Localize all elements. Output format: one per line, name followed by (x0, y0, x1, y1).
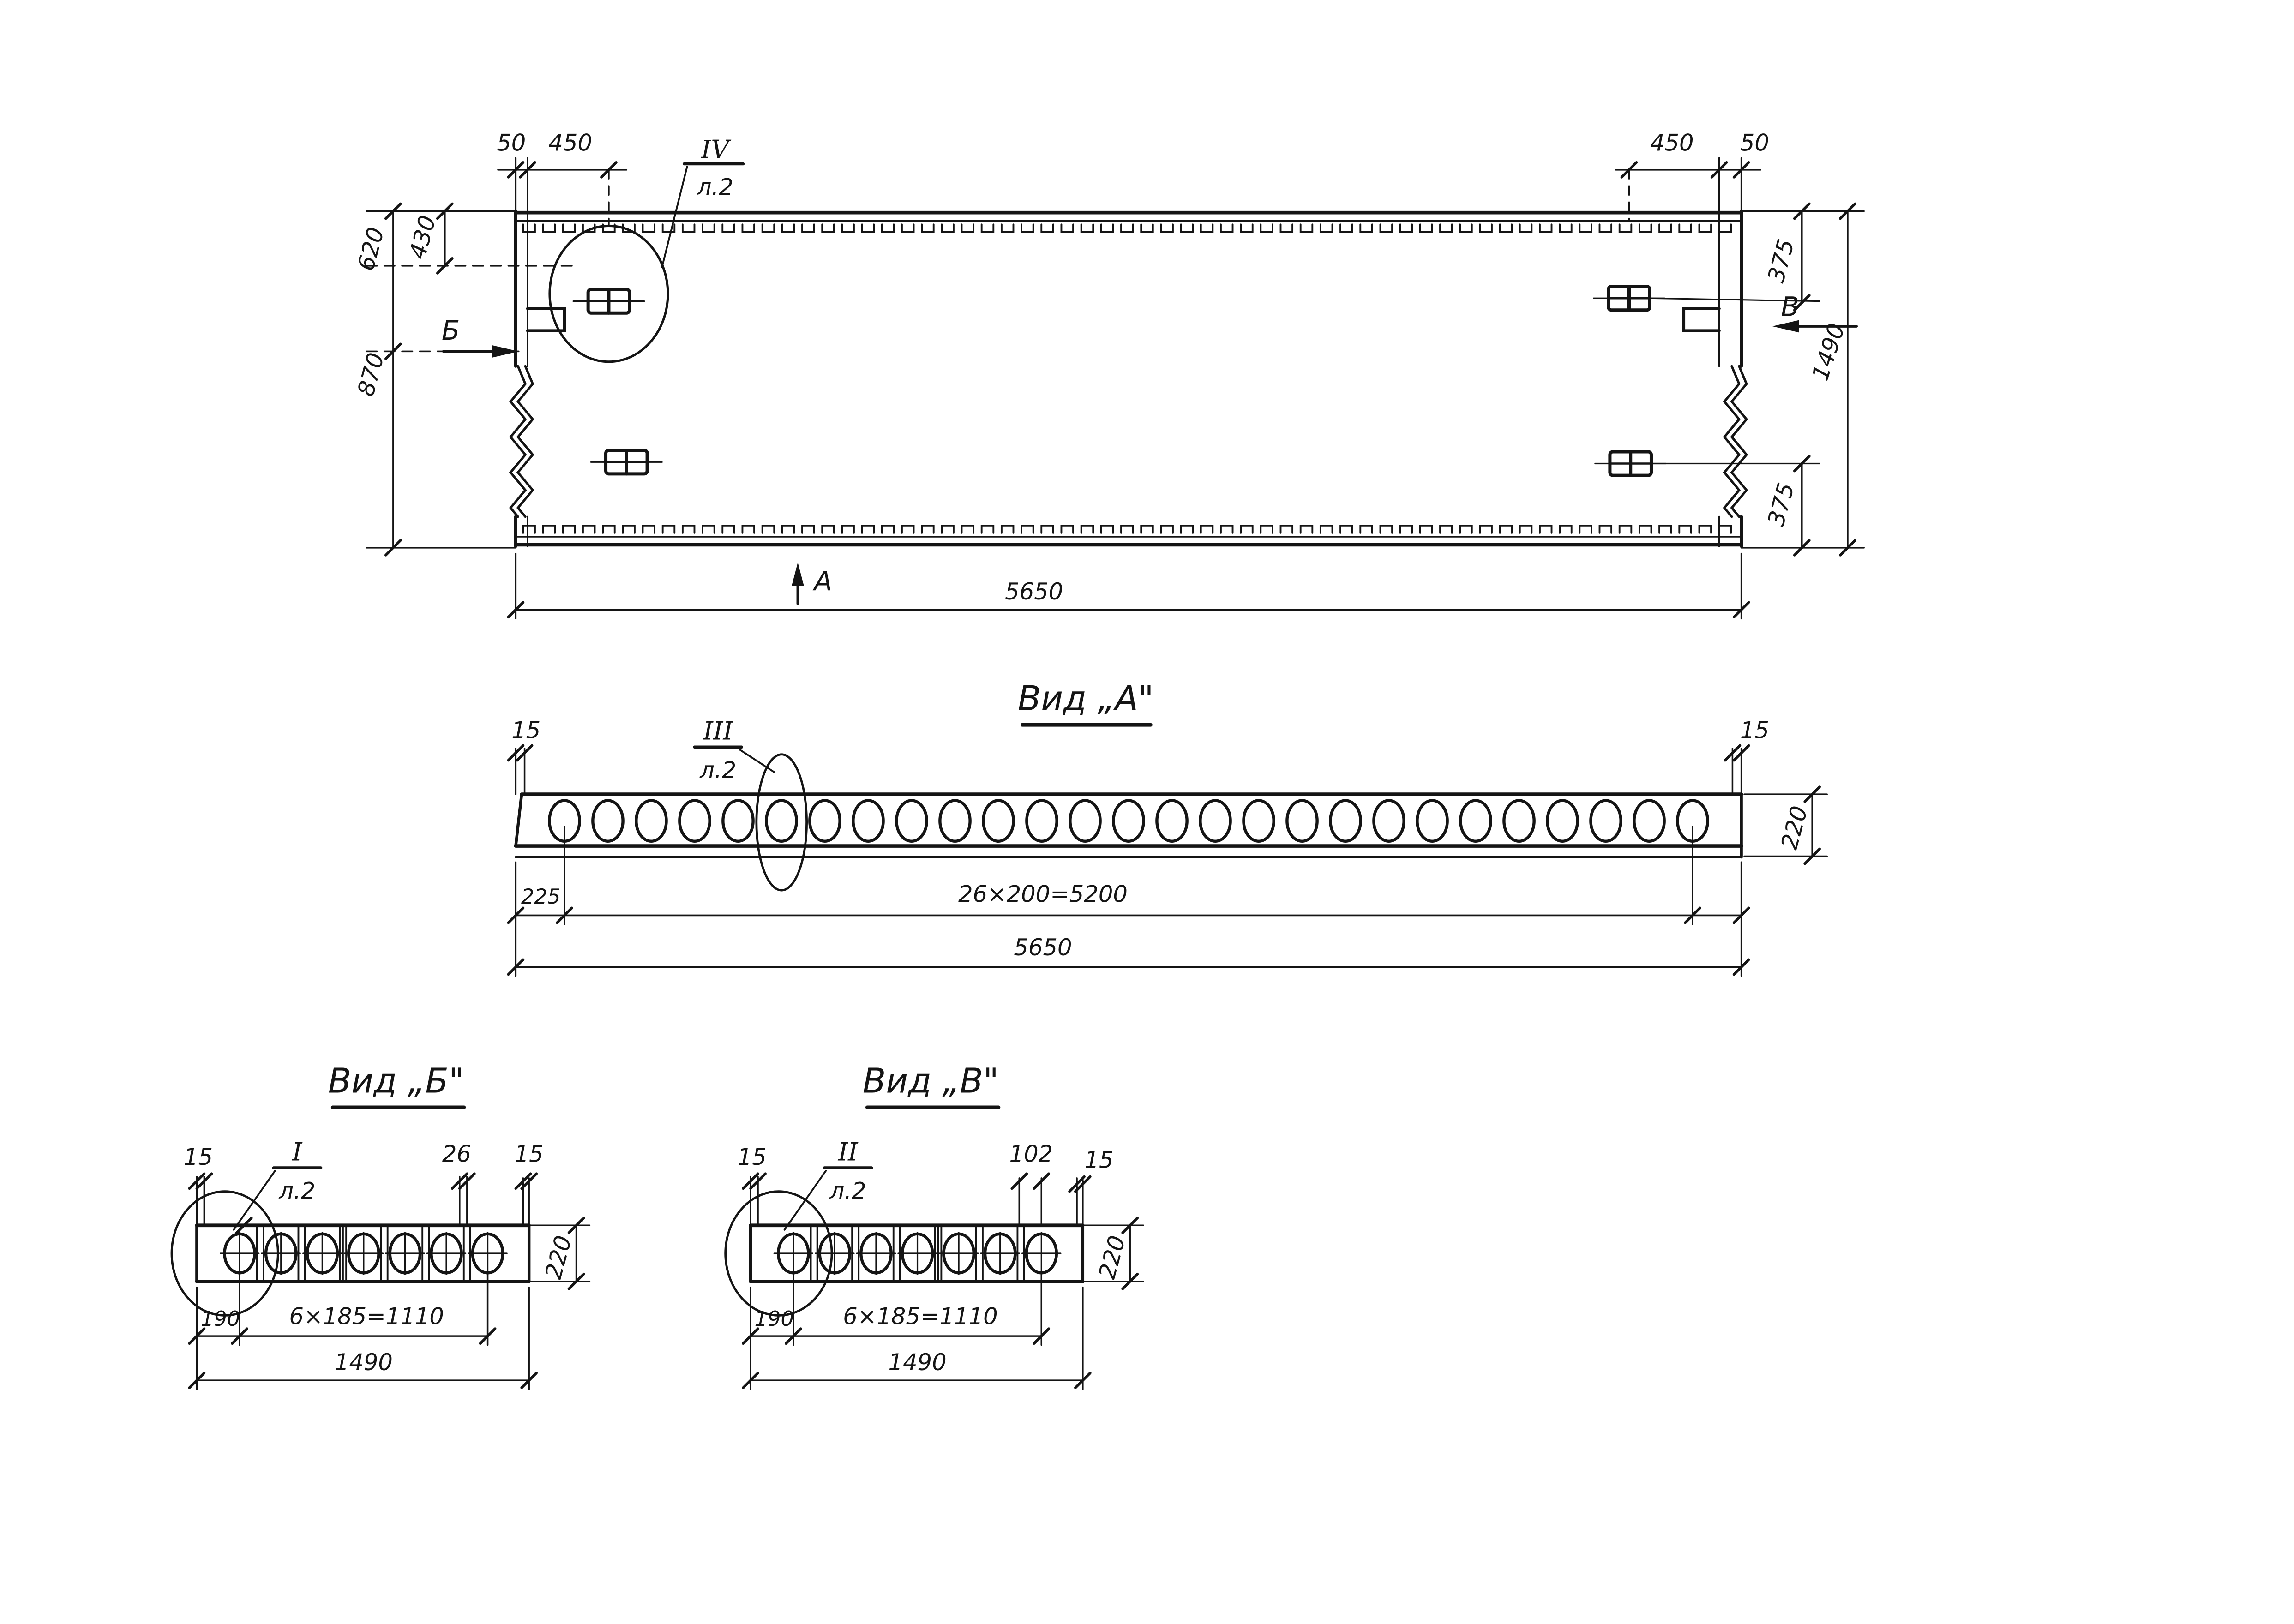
view-a-hole (1243, 801, 1273, 841)
view-a-hole (679, 801, 709, 841)
view-b-dim-15-right: 15 (515, 1141, 544, 1168)
dim-50-right: 50 (1740, 129, 1769, 156)
plan-callout-sheet: л.2 (697, 174, 733, 200)
view-a-hole (810, 801, 840, 841)
view-a-hole (896, 801, 926, 841)
drawing-sheet: IV л.2 50 450 450 50 620 430 870 375 149… (0, 0, 2294, 1624)
view-a-hole (1330, 801, 1360, 841)
view-a-dim-15-right: 15 (1740, 717, 1769, 744)
view-a-hole (853, 801, 883, 841)
plan-top-serration (523, 224, 1731, 232)
view-a-callout-circle (757, 755, 807, 890)
view-a-callout-leader (740, 750, 775, 772)
view-a-hole (636, 801, 666, 841)
view-v-callout-sheet: л.2 (829, 1178, 866, 1205)
view-a-left-end (516, 794, 522, 846)
view-a-callout-sheet: л.2 (699, 757, 736, 784)
view-a-title: Вид „А" (1018, 679, 1154, 719)
view-a-hole (1027, 801, 1057, 841)
dim-450-right: 450 (1650, 129, 1694, 156)
view-a-hole (1460, 801, 1490, 841)
view-a-hole (593, 801, 623, 841)
view-a-hole (1417, 801, 1447, 841)
view-a-hole (983, 801, 1013, 841)
plan-callout-leader (662, 167, 687, 267)
dim-450-left: 450 (548, 129, 592, 156)
view-b-dim-1490: 1490 (335, 1349, 393, 1376)
view-a-dim-225: 225 (521, 884, 560, 909)
view-v-dim-190: 190 (755, 1306, 794, 1331)
plan-bottom-serration (523, 526, 1731, 533)
dim-870: 870 (352, 350, 390, 399)
view-a-dim-220: 220 (1776, 803, 1813, 852)
view-v-callout-detail: II (838, 1137, 859, 1166)
view-b: Вид „Б" I л.2 15 26 15 220 190 6×185=111… (172, 1061, 577, 1375)
view-arrow-b-label: Б (442, 315, 460, 346)
view-v-dim-102: 102 (1009, 1141, 1053, 1168)
view-a-callout-detail: III (703, 717, 733, 746)
view-b-dim-220: 220 (540, 1233, 577, 1282)
view-a-hole (1547, 801, 1577, 841)
view-a-dim-15-left: 15 (511, 717, 540, 744)
view-a-hole (1504, 801, 1534, 841)
view-a-dim-5650: 5650 (1014, 934, 1072, 961)
view-v-callout-leader (785, 1171, 826, 1230)
dim-375-top: 375 (1762, 236, 1800, 285)
view-a: Вид „А" III л.2 15 15 220 225 26×200=520… (511, 679, 1813, 961)
view-v-dim-220: 220 (1093, 1233, 1131, 1282)
dim-430: 430 (404, 213, 441, 262)
view-b-dim-190: 190 (201, 1306, 240, 1331)
view-v-dim-1490: 1490 (888, 1349, 946, 1376)
view-a-hole (1070, 801, 1100, 841)
view-a-hole (1287, 801, 1317, 841)
view-v: Вид „В" II л.2 15 102 15 220 190 6×185=1… (726, 1061, 1131, 1375)
view-arrow-v-label: В (1781, 292, 1799, 323)
view-arrow-a-head (792, 563, 804, 586)
plan-right-tab (1684, 309, 1719, 331)
view-b-callout-detail: I (292, 1137, 303, 1166)
slab-drawing: IV л.2 50 450 450 50 620 430 870 375 149… (0, 0, 2294, 1624)
view-b-callout-leader (234, 1171, 275, 1230)
view-a-hole (723, 801, 753, 841)
view-b-title: Вид „Б" (328, 1061, 464, 1101)
plan-callout-detail: IV (701, 135, 731, 164)
view-v-dim-6x185: 6×185=1110 (843, 1303, 997, 1330)
view-a-hole (1113, 801, 1143, 841)
view-b-dim-26: 26 (442, 1141, 471, 1168)
dim-375-bottom: 375 (1762, 480, 1800, 529)
dim-1490-plan: 1490 (1807, 320, 1850, 384)
view-a-dim-26x200: 26×200=5200 (958, 881, 1128, 908)
dim-5650-plan: 5650 (1005, 578, 1063, 605)
plan-left-tab (528, 309, 564, 331)
view-v-dim-15-right: 15 (1084, 1146, 1113, 1173)
dim-50-left: 50 (497, 129, 526, 156)
view-a-hole (940, 801, 970, 841)
view-a-hole (1200, 801, 1230, 841)
view-a-hole (766, 801, 796, 841)
view-b-callout-sheet: л.2 (278, 1178, 315, 1205)
view-a-hole (1591, 801, 1621, 841)
view-arrow-a-label: А (812, 566, 832, 597)
view-a-hole (1374, 801, 1404, 841)
view-b-dim-15-left: 15 (184, 1144, 213, 1170)
view-v-dim-15-left: 15 (738, 1144, 767, 1170)
generated-linework (189, 158, 1864, 1389)
view-b-dim-6x185: 6×185=1110 (289, 1303, 444, 1330)
view-a-hole (1157, 801, 1187, 841)
view-v-title: Вид „В" (863, 1061, 999, 1101)
view-a-hole (1634, 801, 1664, 841)
